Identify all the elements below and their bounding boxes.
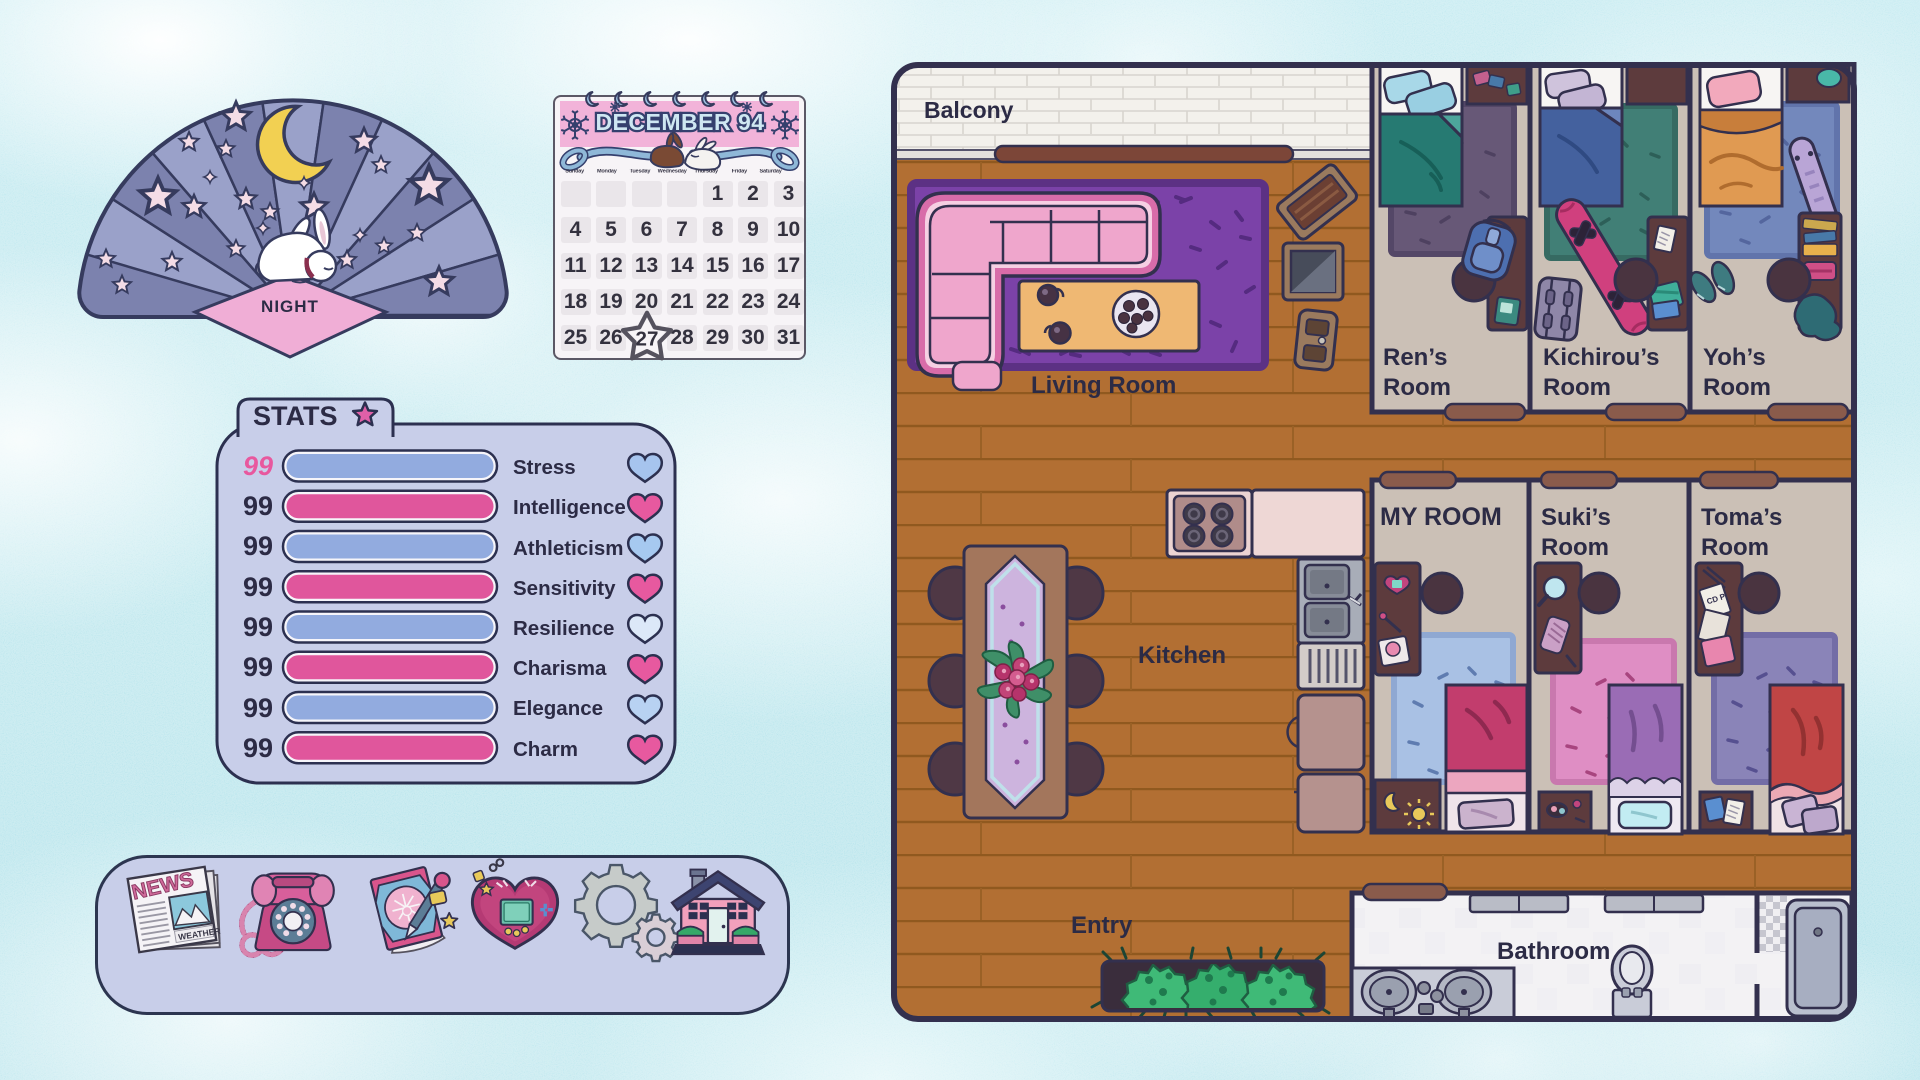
svg-text:Yoh’s: Yoh’s [1703,344,1766,371]
svg-text:Entry: Entry [1071,912,1133,939]
svg-text:Room: Room [1383,374,1451,401]
svg-text:Room: Room [1541,534,1609,561]
svg-text:Room: Room [1703,374,1771,401]
svg-text:Balcony: Balcony [924,97,1014,123]
svg-text:Toma’s: Toma’s [1701,504,1782,531]
svg-text:Sensitivity: Sensitivity [513,577,616,600]
svg-text:Elegance: Elegance [513,697,603,720]
svg-text:99: 99 [243,491,273,521]
svg-text:STATS: STATS [253,401,338,431]
svg-text:Intelligence: Intelligence [513,496,626,519]
svg-text:MY ROOM: MY ROOM [1380,503,1502,531]
svg-text:Bathroom: Bathroom [1497,938,1610,965]
svg-text:99: 99 [243,733,273,763]
svg-text:Charm: Charm [513,738,578,761]
svg-text:Room: Room [1701,534,1769,561]
svg-text:Ren’s: Ren’s [1383,344,1447,371]
svg-text:DECEMBER 94: DECEMBER 94 [595,109,764,135]
svg-text:Kichirou’s: Kichirou’s [1543,344,1659,371]
svg-text:99: 99 [243,652,273,682]
svg-text:Stress: Stress [513,456,576,479]
svg-text:NIGHT: NIGHT [261,297,319,316]
svg-text:99: 99 [243,531,273,561]
svg-text:99: 99 [243,451,273,481]
svg-text:Kitchen: Kitchen [1138,642,1226,669]
svg-text:Athleticism: Athleticism [513,537,624,560]
svg-text:Resilience: Resilience [513,617,614,640]
svg-text:27: 27 [636,327,659,350]
svg-text:Room: Room [1543,374,1611,401]
svg-text:99: 99 [243,693,273,723]
svg-text:99: 99 [243,572,273,602]
svg-text:99: 99 [243,612,273,642]
svg-text:Charisma: Charisma [513,657,607,680]
svg-text:Suki’s: Suki’s [1541,504,1611,531]
svg-text:Living Room: Living Room [1031,372,1176,399]
